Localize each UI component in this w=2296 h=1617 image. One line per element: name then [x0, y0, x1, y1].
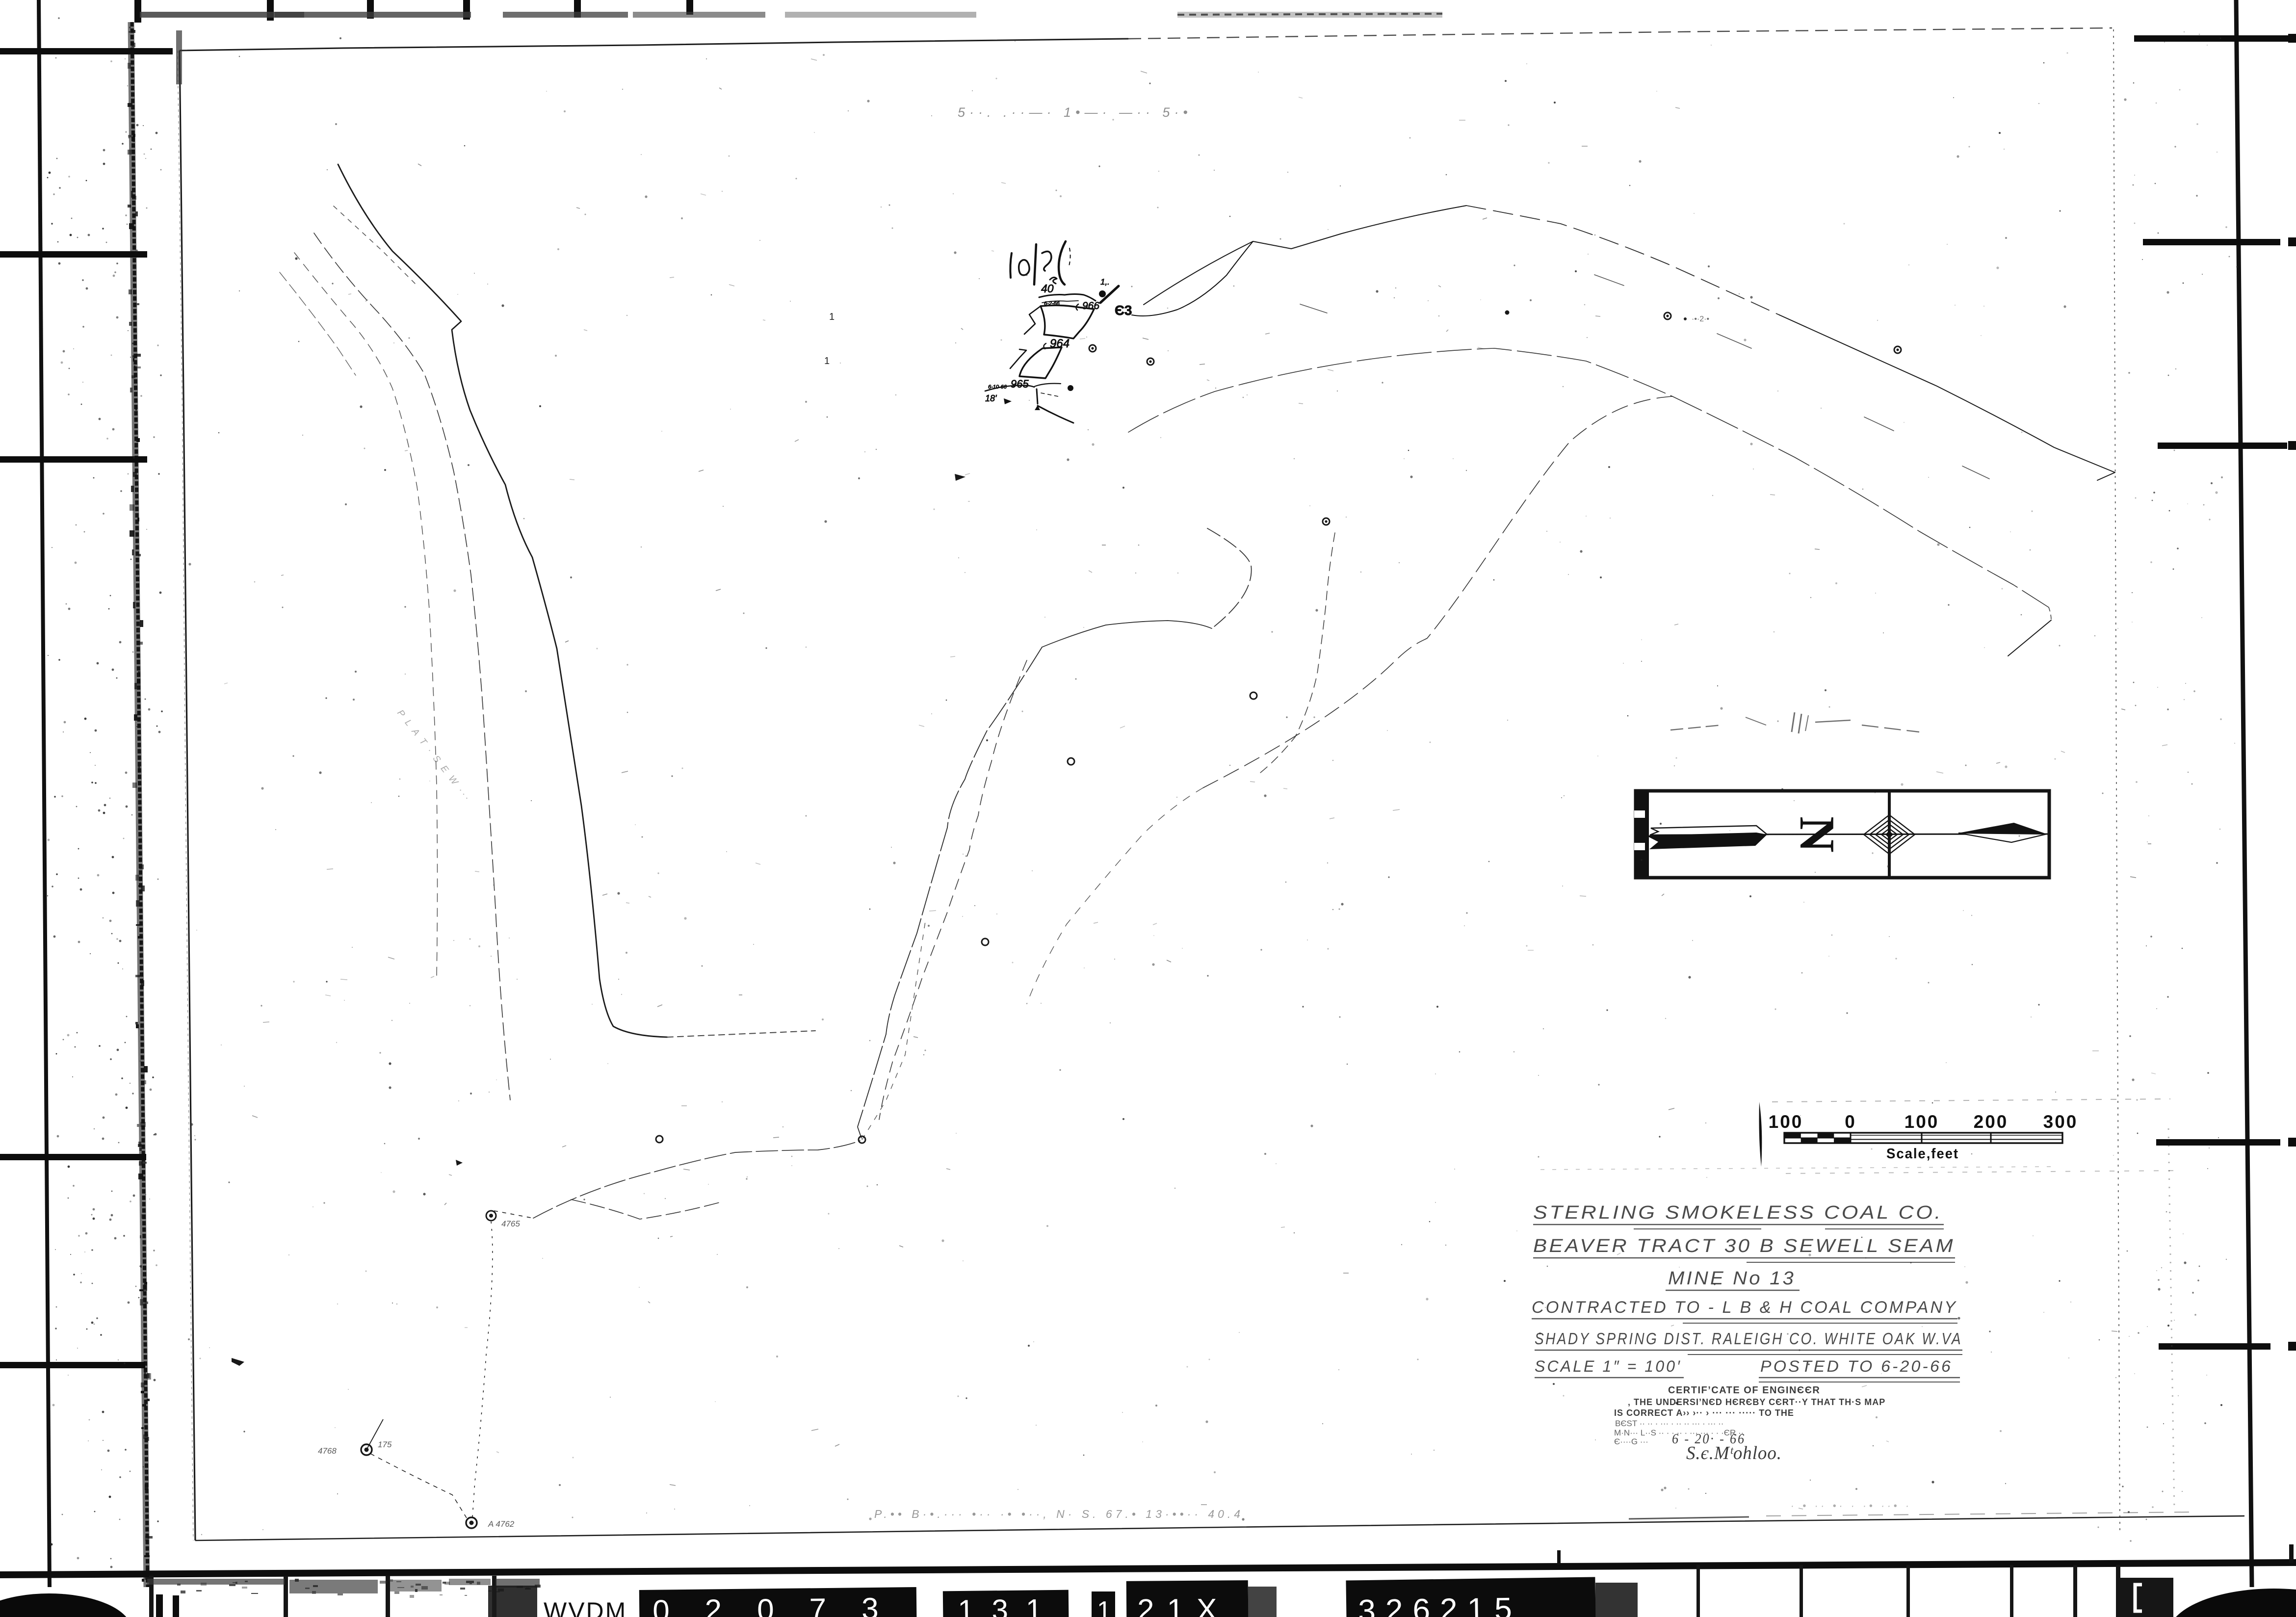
svg-text:Є3: Є3 — [1115, 303, 1132, 318]
svg-text:Scale,feet: Scale,feet — [1886, 1146, 1959, 1162]
svg-text:100: 100 — [1769, 1112, 1803, 1132]
svg-text:WVDM: WVDM — [544, 1597, 627, 1617]
svg-text:4768: 4768 — [318, 1446, 337, 1456]
svg-text:IS CORRECT A›› ›·· › ··· ···: IS CORRECT A›› ›·· › ··· ··· ····· TO TH… — [1614, 1408, 1794, 1418]
svg-text:6-10-66: 6-10-66 — [988, 384, 1007, 390]
svg-text:131: 131 — [958, 1593, 1060, 1617]
svg-text:100: 100 — [1905, 1112, 1939, 1132]
svg-text:SCALE 1″ = 100′: SCALE 1″ = 100′ — [1535, 1357, 1682, 1375]
svg-text:BЄST ·· ·· · ··· · ·· ··: BЄST ·· ·· · ··· · ·· ·· ··· · ··· ·· — [1615, 1419, 1723, 1428]
svg-text:1: 1 — [1097, 1596, 1111, 1617]
svg-text:200: 200 — [1974, 1112, 2009, 1132]
svg-text:·•·2·•: ·•·2·• — [1692, 315, 1709, 323]
svg-text:4765: 4765 — [501, 1219, 520, 1228]
svg-text:1,.: 1,. — [1100, 277, 1110, 287]
svg-text:21X: 21X — [1137, 1592, 1230, 1617]
svg-text:· • ·· •· · ·• ··• ·: · • ·· •· · ·• ··• · — [1791, 1501, 1912, 1512]
svg-text:STERLING SMOKELESS COAL CO.: STERLING SMOKELESS COAL CO. — [1533, 1202, 1943, 1223]
svg-text:SHADY SPRING DIST. RALEIGH CO: SHADY SPRING DIST. RALEIGH CO. WHITE OAK… — [1535, 1330, 1962, 1348]
svg-text:40: 40 — [1041, 282, 1054, 295]
svg-text:N: N — [1789, 816, 1845, 853]
svg-text:02073: 02073 — [652, 1591, 914, 1617]
svg-text:CERTIF’CATE OF ENGINЄЄR: CERTIF’CATE OF ENGINЄЄR — [1668, 1385, 1820, 1396]
svg-text:BEAVER TRACT 30 B SEWELL SE: BEAVER TRACT 30 B SEWELL SEAM — [1533, 1236, 1955, 1256]
svg-text:Є····G ···: Є····G ··· — [1614, 1437, 1648, 1446]
svg-text:CONTRACTED TO - L B & H CO: CONTRACTED TO - L B & H COAL COMPANY — [1532, 1298, 1957, 1317]
svg-text:965: 965 — [1011, 378, 1029, 390]
svg-text:175: 175 — [378, 1440, 392, 1449]
svg-text:5··. .··—· 1•—· —·· 5·•: 5··. .··—· 1•—· —·· 5·• — [958, 105, 1192, 120]
svg-text:0: 0 — [1845, 1112, 1856, 1132]
svg-text:MINE No 13: MINE No 13 — [1668, 1268, 1796, 1289]
svg-text:P.•• B·•.··· •·· ·• •··, N·: P.•• B·•.··· •·· ·• •··, N· S. 67.• 13·•… — [874, 1508, 1244, 1520]
svg-text:1: 1 — [829, 312, 835, 322]
svg-text:966: 966 — [1082, 300, 1099, 312]
svg-text:POSTED TO 6-20-66: POSTED TO 6-20-66 — [1760, 1357, 1953, 1375]
svg-text:‚ THE UNDERSI’NЄD HЄRЄBY CЄR: ‚ THE UNDERSI’NЄD HЄRЄBY CЄRT··Y THAT TH… — [1628, 1397, 1885, 1407]
svg-text:326215: 326215 — [1358, 1591, 1522, 1617]
svg-text:300: 300 — [2043, 1112, 2078, 1132]
svg-text:1: 1 — [824, 356, 830, 366]
svg-text:P L A T · S E W ···: P L A T · S E W ··· — [395, 708, 473, 804]
svg-text:S.є.Mᵗоhloo.: S.є.Mᵗоhloo. — [1686, 1443, 1782, 1463]
svg-text:18': 18' — [985, 393, 997, 403]
svg-text:A 4762: A 4762 — [488, 1519, 515, 1529]
